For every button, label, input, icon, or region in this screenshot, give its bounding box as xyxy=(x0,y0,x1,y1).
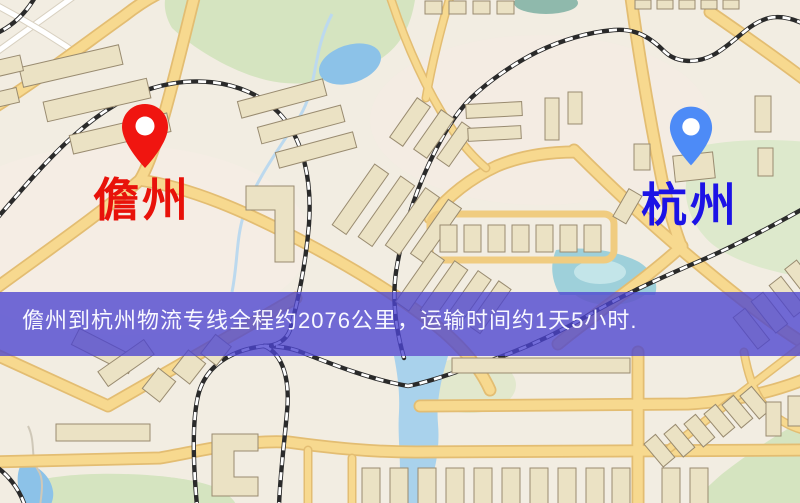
map-view: 儋州 杭州 儋州到杭州物流专线全程约2076公里，运输时间约1天5小时. xyxy=(0,0,800,503)
route-info-banner: 儋州到杭州物流专线全程约2076公里，运输时间约1天5小时. xyxy=(0,292,800,356)
origin-pin-icon xyxy=(121,103,169,169)
map-canvas xyxy=(0,0,800,503)
route-info-text: 儋州到杭州物流专线全程约2076公里，运输时间约1天5小时. xyxy=(22,308,638,333)
destination-pin-icon xyxy=(669,105,713,167)
destination-city-label: 杭州 xyxy=(641,182,739,228)
origin-pin[interactable] xyxy=(121,103,169,174)
destination-pin[interactable] xyxy=(669,105,713,172)
origin-city-label: 儋州 xyxy=(93,177,191,223)
